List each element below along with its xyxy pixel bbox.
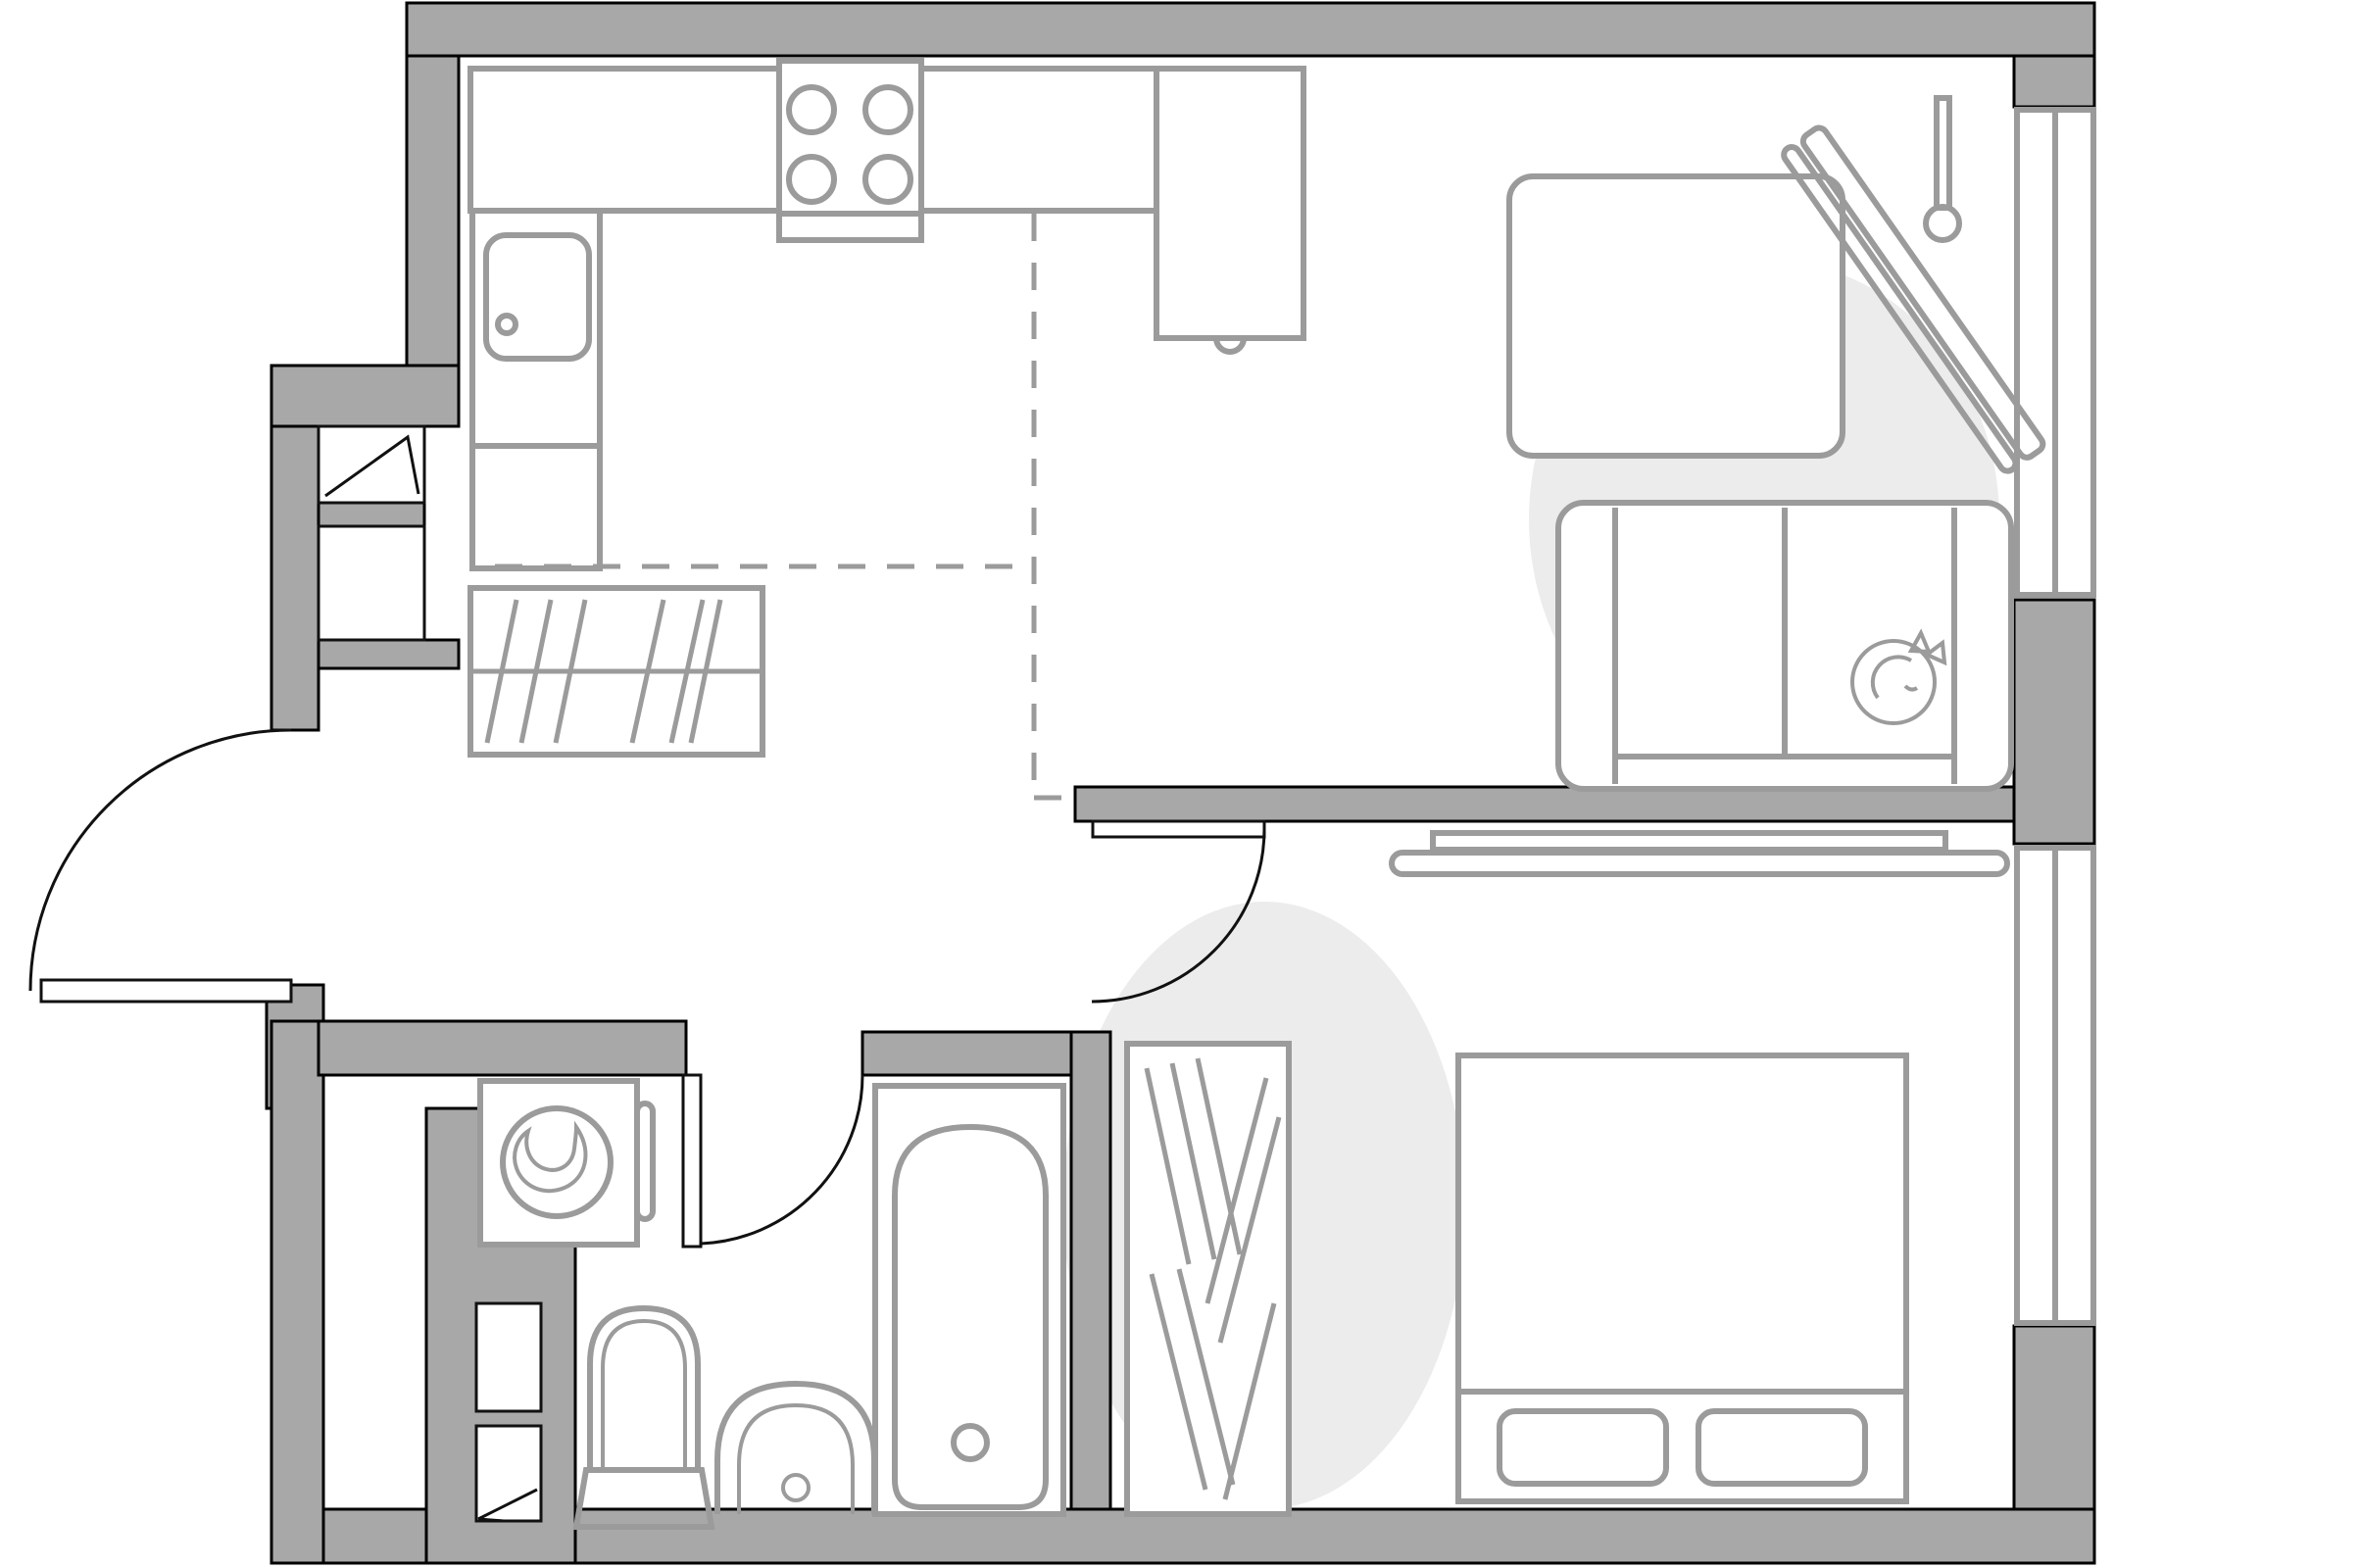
- kitchen-sink: [486, 235, 589, 359]
- floor-plan-drawing: [0, 0, 2360, 1568]
- closet-hatched: [470, 588, 762, 755]
- wall-between-shafts: [319, 503, 424, 526]
- shaft-box-lower: [319, 526, 424, 640]
- washing-machine: [480, 1081, 653, 1245]
- pillow: [1500, 1411, 1666, 1484]
- wall-living-bedroom-divider: [1075, 787, 2014, 821]
- refrigerator: [1156, 69, 1303, 338]
- wall-bottom-right-block: [2014, 1326, 2094, 1512]
- double-bed: [1458, 1055, 1906, 1501]
- wall-bathroom-top-left: [319, 1021, 686, 1075]
- wall-top: [407, 3, 2094, 56]
- wall-alcove-outer: [271, 426, 319, 730]
- bedroom-door-leaf: [1093, 821, 1264, 837]
- pillow: [1698, 1411, 1865, 1484]
- sofa: [1558, 503, 2011, 789]
- bath-corner-box-fold2-icon: [478, 1519, 504, 1521]
- bathtub: [875, 1086, 1063, 1514]
- bathroom-door-leaf: [683, 1075, 701, 1247]
- wall-left-lower: [271, 1021, 323, 1563]
- bath-shaft-box: [476, 1303, 541, 1411]
- dining-table: [1509, 176, 1843, 456]
- entry-door-leaf: [41, 980, 291, 1002]
- wall-hallway-vertical: [1071, 1032, 1110, 1509]
- wall-right-mid-block: [2014, 600, 2094, 844]
- wardrobe-hatched: [1127, 1044, 1289, 1514]
- wall-left-upper: [407, 56, 459, 366]
- wall-alcove-top: [271, 366, 459, 426]
- bath-corner-box: [476, 1426, 541, 1521]
- wall-below-shafts: [319, 640, 459, 668]
- wall-top-right-block: [2014, 56, 2094, 107]
- floor-plan: [0, 0, 2360, 1568]
